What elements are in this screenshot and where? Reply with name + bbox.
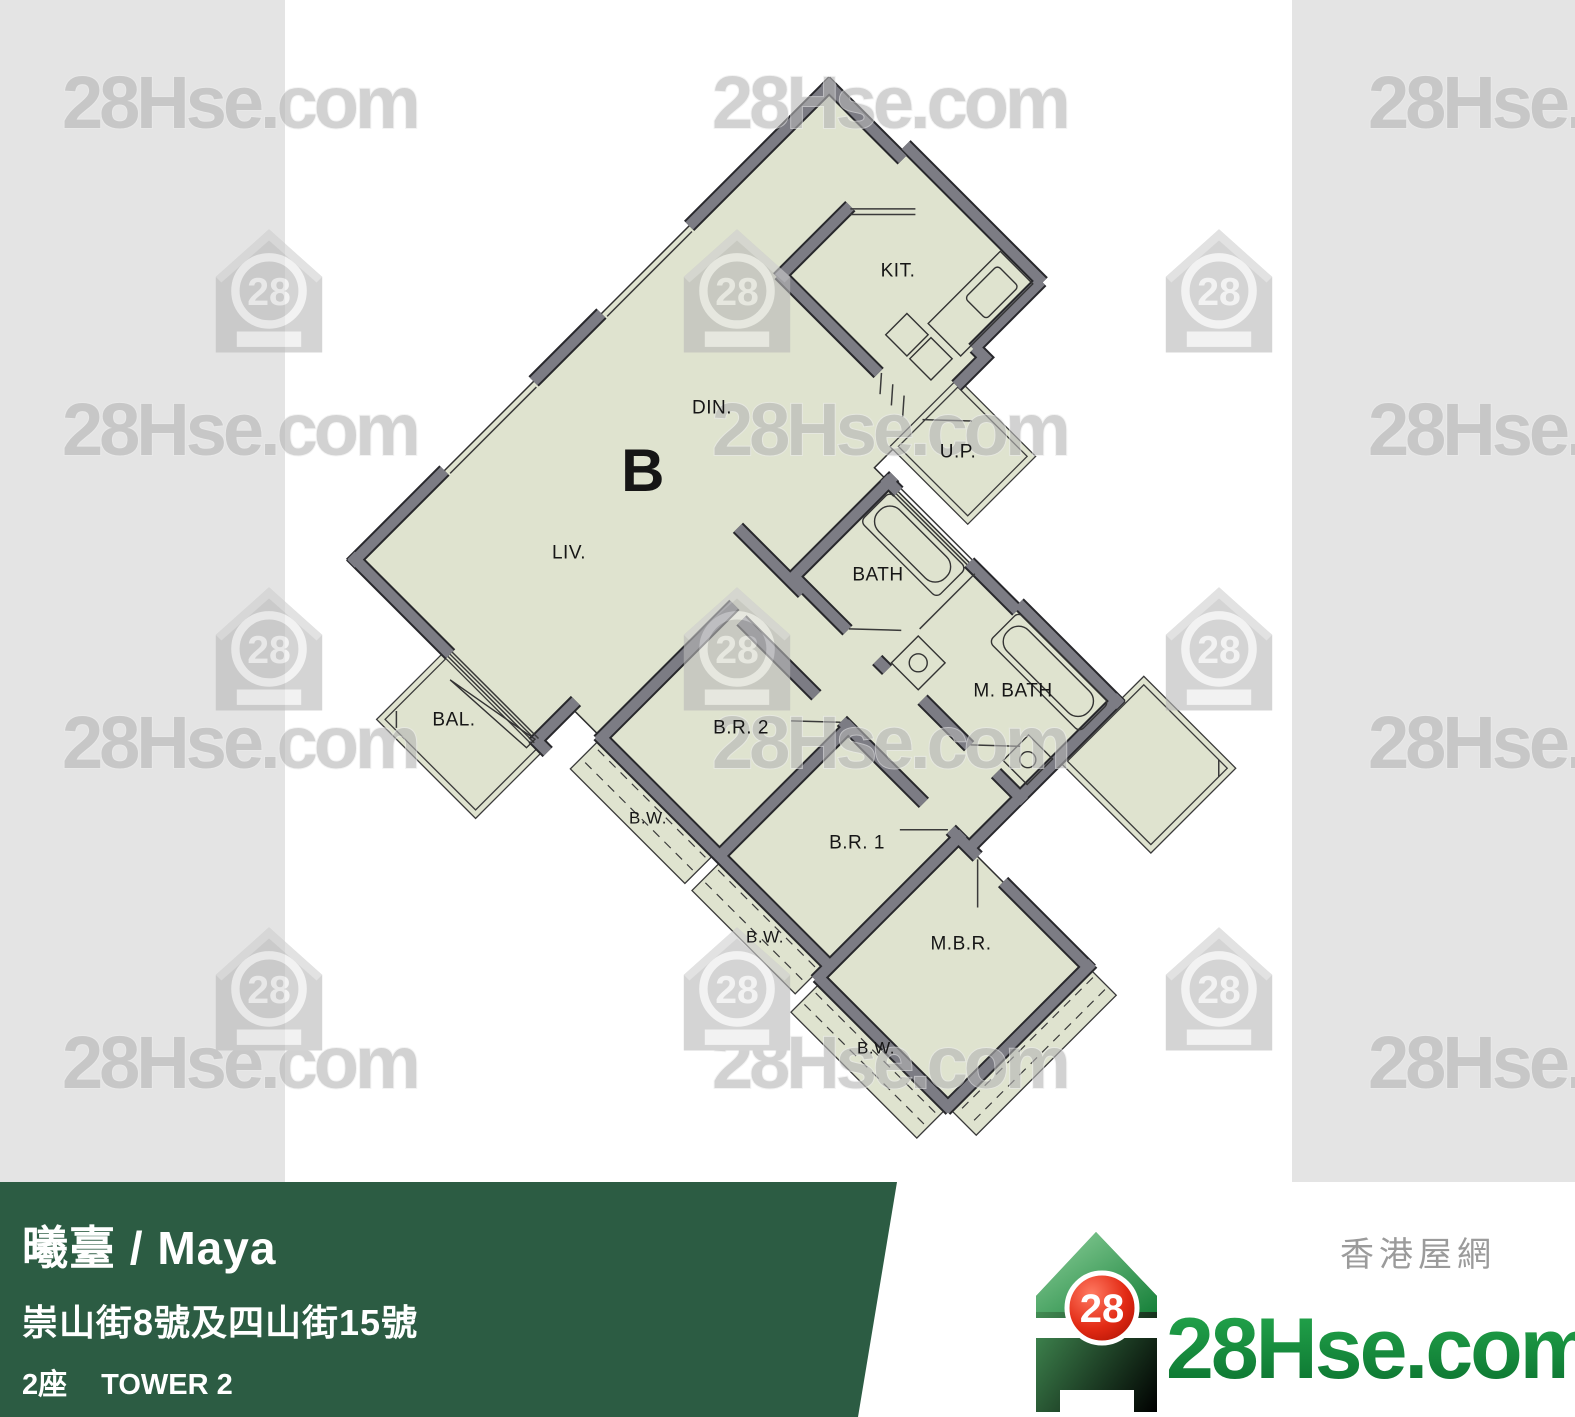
- room-label-bal: BAL.: [432, 711, 475, 730]
- watermark-text: 28Hse.com: [1368, 1021, 1575, 1104]
- property-address: 崇山街8號及四山街15號: [22, 1294, 454, 1346]
- floorplan-page: 28: [0, 0, 1575, 1417]
- property-info: 曦臺 / Maya 崇山街8號及四山街15號 2座TOWER 2 716 sqf…: [22, 1212, 454, 1417]
- brand-chinese-name: 香港屋網: [1340, 1236, 1496, 1274]
- watermark-text: 28Hse.com: [712, 388, 1067, 471]
- room-label-b: B: [621, 441, 665, 501]
- watermark-text: 28Hse.com: [62, 61, 417, 144]
- right-gray-band: [1292, 0, 1575, 1182]
- property-title: 曦臺 / Maya: [22, 1212, 454, 1278]
- room-label-mbath: M. BATH: [973, 682, 1052, 701]
- logo-28-number: 28: [1080, 1287, 1125, 1331]
- tower-en: TOWER 2: [101, 1369, 233, 1401]
- room-label-bath: BATH: [852, 566, 903, 585]
- watermark-text: 28Hse.com: [1368, 61, 1575, 144]
- watermark-text: 28Hse.com: [712, 701, 1067, 784]
- watermark-text: 28Hse.com: [1368, 388, 1575, 471]
- room-label-din: DIN.: [692, 399, 732, 418]
- floor-plan-canvas: 28: [0, 0, 1575, 1417]
- room-label-bw: B.W.: [746, 929, 784, 946]
- logo-door-slot: [1060, 1390, 1134, 1412]
- room-label-up: U.P.: [940, 443, 977, 462]
- property-tower: 2座TOWER 2: [22, 1361, 454, 1403]
- room-label-kit: KIT.: [881, 262, 916, 281]
- watermark-text: 28Hse.com: [1368, 701, 1575, 784]
- room-label-br1: B.R. 1: [829, 834, 885, 853]
- room-label-mbr: M.B.R.: [930, 935, 991, 954]
- tower-zh: 2座: [22, 1369, 67, 1401]
- brand-site-name: 28Hse.com: [1166, 1301, 1575, 1397]
- room-label-br2: B.R. 2: [713, 719, 769, 738]
- room-label-liv: LIV.: [552, 544, 586, 563]
- watermark-text: 28Hse.com: [62, 701, 417, 784]
- room-label-bw: B.W.: [629, 810, 667, 827]
- watermark-text: 28Hse.com: [712, 61, 1067, 144]
- watermark-text: 28Hse.com: [62, 388, 417, 471]
- room-label-bw: B.W.: [857, 1040, 895, 1057]
